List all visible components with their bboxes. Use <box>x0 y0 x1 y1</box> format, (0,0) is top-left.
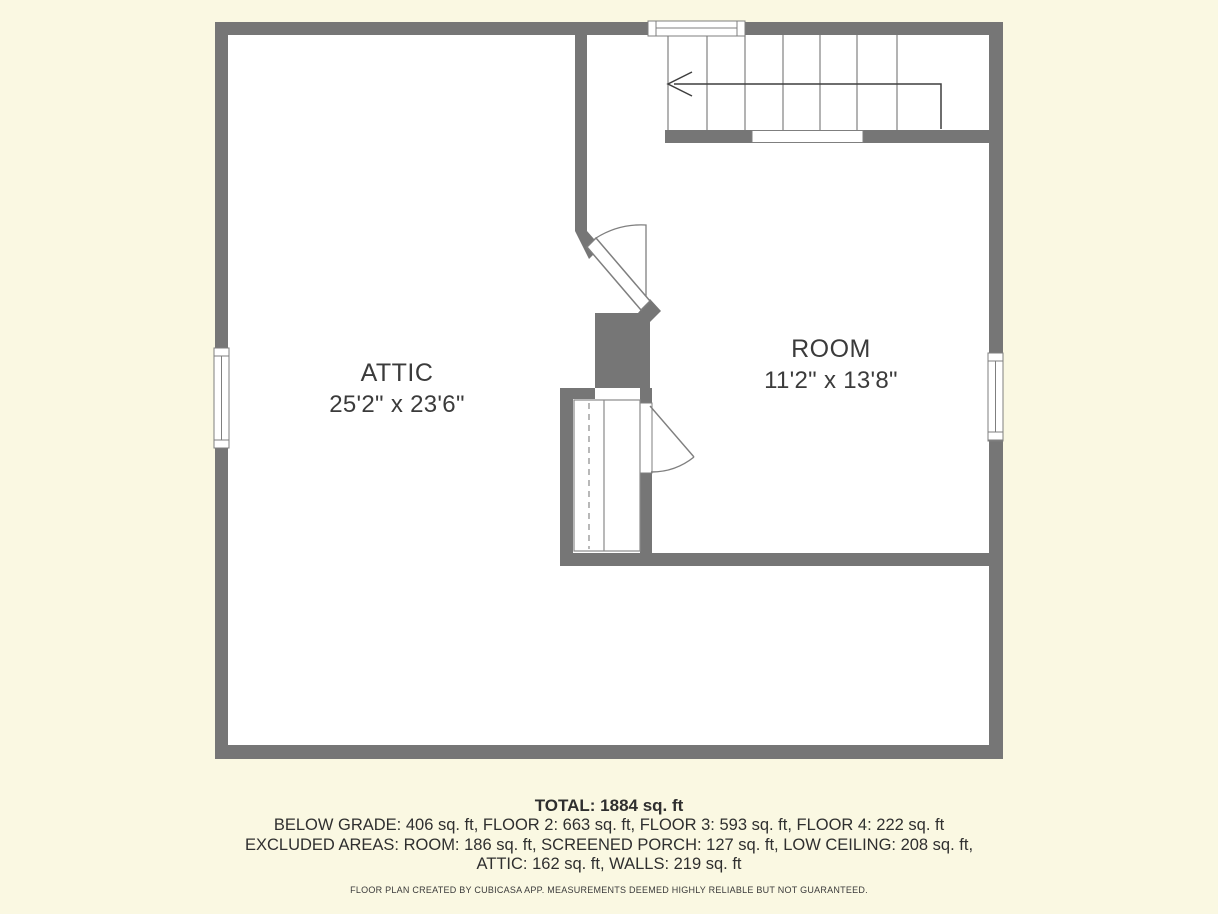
excluded-areas-text: EXCLUDED AREAS: ROOM: 186 sq. ft, SCREEN… <box>0 836 1218 856</box>
window-left-icon <box>214 348 229 448</box>
stair-opening <box>752 131 863 143</box>
window-right-icon <box>988 353 1003 441</box>
floor-plan-page: ATTIC 25'2" x 23'6" ROOM 11'2" x 13'8" T… <box>0 0 1218 914</box>
wall-block <box>595 313 650 388</box>
disclaimer-text: FLOOR PLAN CREATED BY CUBICASA APP. MEAS… <box>0 885 1218 895</box>
total-area-text: TOTAL: 1884 sq. ft <box>0 796 1218 816</box>
wardrobe-icon <box>574 400 640 551</box>
excluded-areas-text-2: ATTIC: 162 sq. ft, WALLS: 219 sq. ft <box>0 855 1218 875</box>
exterior-wall-top <box>215 22 1003 35</box>
window-top-icon <box>648 21 745 36</box>
floor-areas-text: BELOW GRADE: 406 sq. ft, FLOOR 2: 663 sq… <box>0 816 1218 836</box>
room-bottom-wall <box>560 553 1002 566</box>
hall-wall <box>575 35 587 231</box>
closet-top-wall <box>560 388 595 399</box>
closet-left-wall <box>560 388 573 566</box>
area-summary: TOTAL: 1884 sq. ft BELOW GRADE: 406 sq. … <box>0 796 1218 895</box>
closet-right-wall-upper <box>640 388 652 403</box>
floor-plan-drawing <box>0 0 1218 914</box>
closet-right-wall-lower <box>640 473 652 553</box>
exterior-wall-bottom <box>215 745 1003 759</box>
